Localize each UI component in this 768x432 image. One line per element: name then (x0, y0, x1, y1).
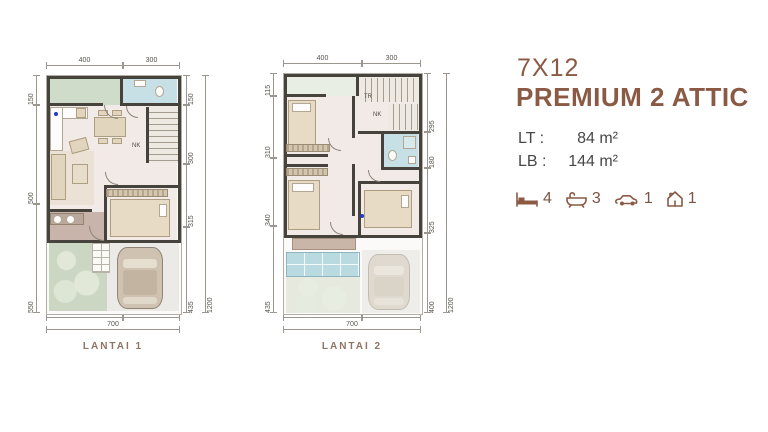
dim-plan1-right-2: 300 (186, 105, 199, 164)
wardrobe (286, 168, 328, 176)
wall (47, 209, 92, 212)
dim-plan1-left-3: 550 (24, 204, 37, 313)
stairs-lower (388, 104, 418, 130)
wall (358, 181, 361, 236)
shower (403, 136, 416, 149)
toilet (388, 150, 397, 161)
wardrobe (106, 189, 168, 197)
dim-plan1-right-3: 315 (186, 164, 199, 227)
toilet (155, 86, 164, 97)
bed-count: 4 (543, 190, 552, 208)
dim-plan2-right-2: 180 (427, 132, 440, 168)
dim-plan2-top-1: 400 (283, 51, 362, 64)
dim-plan2-right-4: 400 (427, 233, 440, 313)
bathtub-icon (565, 191, 588, 208)
wall (284, 154, 328, 157)
wall (284, 74, 422, 77)
dim-plan2-right-1: 295 (427, 73, 440, 132)
bed-icon (515, 191, 539, 208)
pillow (401, 195, 409, 208)
car-icon (614, 191, 640, 208)
car-faded (368, 254, 410, 310)
dim-plan2-right-3: 325 (427, 168, 440, 233)
sink (134, 80, 146, 87)
wall (284, 235, 422, 238)
wall (47, 240, 181, 243)
attic-count: 1 (688, 190, 697, 208)
bathroom-floor (123, 78, 177, 105)
wardrobe (286, 144, 330, 152)
pillow (292, 183, 314, 192)
basin (66, 215, 75, 224)
dim-plan1-left-1: 150 (24, 75, 37, 105)
wall (120, 76, 123, 106)
plan-lantai-1: NK (46, 75, 182, 315)
garden-floor-faded (286, 277, 360, 313)
plan2-label: LANTAI 2 (292, 341, 412, 352)
wall (47, 103, 103, 106)
car-count: 1 (644, 190, 653, 208)
wall (358, 181, 420, 184)
wall (381, 134, 384, 170)
pillow (292, 103, 311, 112)
sofa (51, 154, 66, 200)
stove-dot (54, 112, 58, 116)
bed (110, 199, 170, 237)
dim-plan1-right-1: 150 (186, 75, 199, 105)
spec-lt: LT :84 m² (518, 130, 618, 148)
service-room-floor (49, 78, 122, 105)
sink (408, 156, 416, 164)
wall (47, 76, 181, 79)
stairs-label: NK (373, 112, 381, 118)
lt-value: 84 m² (556, 130, 618, 148)
basin (53, 215, 62, 224)
stairs-up-label: TR (364, 94, 372, 100)
feature-bathrooms: 3 (565, 190, 601, 208)
feature-bedrooms: 4 (515, 190, 552, 208)
bed (288, 100, 316, 146)
pillow (159, 204, 167, 217)
dim-plan2-left-3: 340 (261, 158, 274, 226)
lamp-dot (360, 214, 364, 218)
rear-window (374, 298, 404, 305)
car-roof (374, 277, 404, 296)
wall (419, 74, 422, 236)
fridge (76, 108, 86, 118)
dining-table (94, 117, 126, 137)
wall (356, 74, 359, 96)
void-roof-strip (286, 76, 358, 96)
dim-plan2-left-1: 115 (261, 73, 274, 96)
lb-label: LB : (518, 153, 556, 171)
unit-size-title: 7X12 (517, 54, 579, 83)
bath-count: 3 (592, 190, 601, 208)
dim-plan1-top-2: 300 (123, 53, 180, 66)
wall (352, 96, 355, 138)
lt-label: LT : (518, 130, 556, 148)
stairs-label: NK (132, 143, 140, 149)
chair (112, 138, 122, 144)
plan-lantai-2: TR NK (283, 73, 423, 315)
stairs (149, 107, 178, 163)
dim-plan2-bottom-total: 700 (283, 317, 421, 330)
coffee-table (72, 164, 88, 184)
car-roof (123, 270, 157, 295)
glass-canopy (286, 252, 360, 277)
car (117, 247, 163, 309)
dim-plan1-top-1: 400 (46, 53, 123, 66)
wall (104, 185, 181, 188)
balcony-floor (292, 238, 356, 250)
wall (381, 167, 420, 170)
wall (284, 94, 326, 97)
dim-plan2-left-2: 310 (261, 96, 274, 158)
dim-plan1-left-2: 500 (24, 105, 37, 204)
bed (288, 180, 320, 230)
dim-plan2-left-4: 435 (261, 226, 274, 313)
attic-house-icon (666, 190, 684, 208)
feature-carport: 1 (614, 190, 653, 208)
wall (178, 76, 181, 243)
dim-plan1-bottom-total: 700 (46, 317, 180, 330)
lb-value: 144 m² (556, 153, 618, 171)
dim-plan2-right-total: 1200 (446, 73, 459, 313)
plan1-label: LANTAI 1 (53, 341, 173, 352)
rear-window (123, 297, 157, 304)
unit-name-title: PREMIUM 2 ATTIC (516, 82, 749, 113)
wall (284, 164, 328, 167)
wall (352, 164, 355, 216)
windshield (374, 266, 404, 275)
wall (358, 131, 420, 134)
stepping-stones (92, 243, 110, 273)
dim-plan1-right-4: 435 (186, 227, 199, 313)
floorplan-sheet: 400 300 150 500 550 150 300 315 435 1200… (0, 0, 768, 432)
spec-lb: LB :144 m² (518, 153, 618, 171)
dim-plan1-right-total: 1200 (205, 75, 218, 313)
bed (364, 190, 412, 228)
chair (98, 138, 108, 144)
dim-plan2-top-2: 300 (362, 51, 421, 64)
feature-row: 4 3 1 (515, 190, 697, 208)
windshield (123, 259, 157, 268)
feature-attic: 1 (666, 190, 697, 208)
